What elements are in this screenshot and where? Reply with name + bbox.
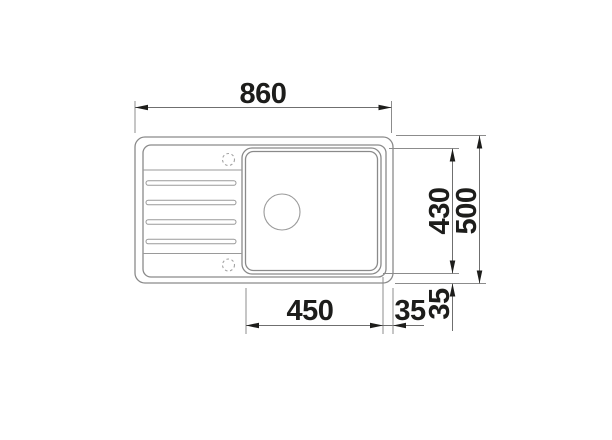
dimension-label-bowl-depth: 430	[424, 188, 456, 235]
dimension-label-gap-right: 35	[394, 295, 426, 327]
arrowhead-down-icon	[450, 261, 456, 274]
drainboard-groove	[146, 200, 236, 205]
arrowhead-down-icon	[477, 271, 483, 284]
dimension-gap-right: 35	[393, 288, 426, 334]
arrowhead-left-icon	[135, 105, 148, 111]
sink-technical-drawing: 860 500 430 35	[0, 0, 612, 440]
arrowhead-up-icon	[450, 149, 456, 162]
dimension-label-gap-bottom: 35	[424, 288, 456, 320]
arrowhead-left-icon	[246, 323, 259, 329]
drainboard-groove	[146, 181, 236, 186]
bowl	[242, 148, 381, 274]
drainboard-groove	[146, 239, 236, 244]
drainboard	[143, 170, 242, 254]
arrowhead-right-icon	[370, 323, 383, 329]
tap-hole-top	[223, 154, 235, 166]
arrowhead-up-icon	[477, 136, 483, 149]
dimension-label-overall-width: 860	[240, 78, 287, 110]
sink-technical-drawing-page: 860 500 430 35	[0, 0, 612, 440]
drainboard-groove	[146, 220, 236, 225]
bowl-outer-edge	[242, 148, 381, 274]
arrowhead-right-icon	[379, 105, 392, 111]
tap-hole-bottom	[223, 259, 235, 271]
dimension-gap-bottom: 35	[424, 284, 456, 332]
drain-hole	[264, 194, 300, 230]
dimension-bowl-depth: 430	[383, 149, 459, 274]
bowl-inner-edge	[246, 152, 378, 271]
dimension-label-bowl-width: 450	[287, 295, 334, 327]
dimension-overall-width: 860	[135, 78, 392, 133]
